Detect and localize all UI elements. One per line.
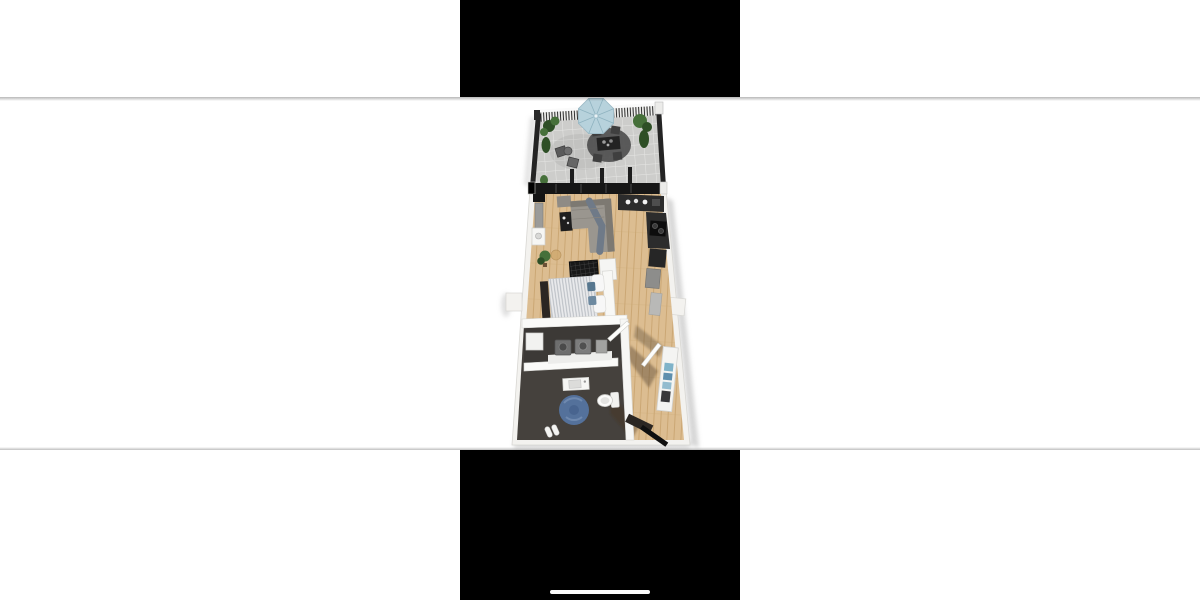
tv-panel — [533, 194, 545, 202]
letterbox-top — [460, 0, 740, 97]
wall-radiator — [649, 293, 662, 316]
home-indicator[interactable] — [550, 590, 650, 594]
floor-plan-photo[interactable] — [460, 97, 740, 450]
basket — [551, 250, 561, 260]
washing-machine — [555, 340, 571, 355]
side-table — [559, 212, 572, 232]
parasol — [578, 98, 613, 133]
accent-pillow — [587, 282, 596, 292]
washer-cabinet — [532, 228, 545, 245]
laundry-cabinet — [526, 333, 543, 350]
sink-vanity — [563, 377, 590, 390]
accent-pillow — [588, 296, 597, 306]
fence-post — [655, 102, 663, 114]
floor-plan-render — [460, 97, 740, 450]
dryer — [575, 339, 591, 354]
armchair — [557, 196, 572, 208]
wall-stub-left — [506, 293, 522, 311]
fence-post — [534, 110, 540, 120]
screenshot-canvas — [0, 0, 1200, 600]
laundry-basket — [596, 340, 607, 353]
letterbox-bottom — [460, 450, 740, 600]
phone-screen — [460, 0, 740, 600]
terrace — [528, 98, 667, 194]
cooktop — [649, 220, 666, 236]
